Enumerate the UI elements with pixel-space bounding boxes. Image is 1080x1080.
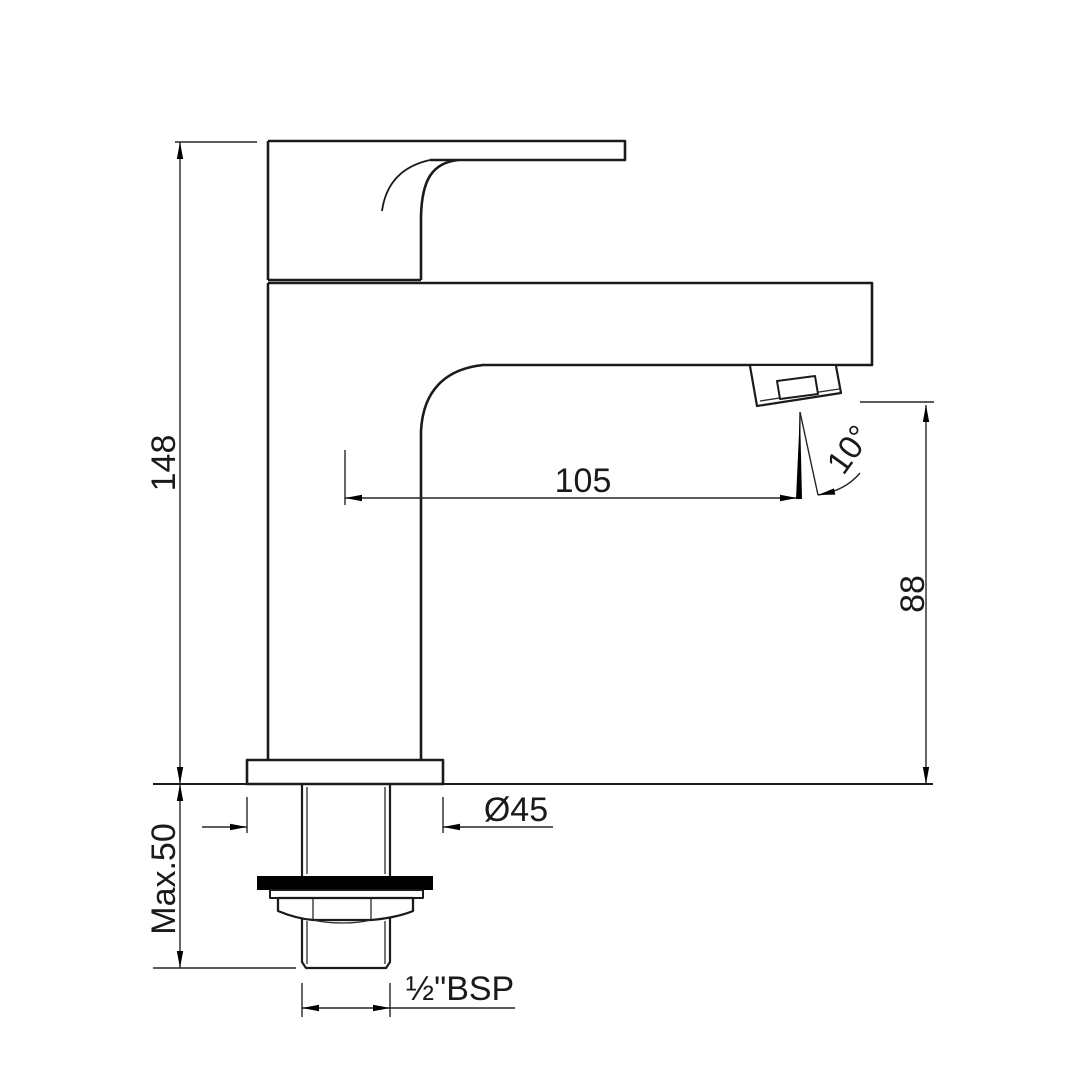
hex-nut-outline	[278, 898, 413, 920]
dim-max50-arrow-down	[177, 951, 183, 968]
dim-dia45: Ø45	[202, 791, 553, 833]
angle-wedge	[796, 412, 802, 499]
handle-lever	[268, 141, 625, 280]
dim-bsp-arrow-right	[373, 1005, 390, 1011]
dim-bsp: ½"BSP	[302, 970, 515, 1017]
dim-dia45-arrow-left	[230, 824, 247, 830]
dim-angle-label: 10°	[819, 418, 878, 480]
dim-max50-arrow-up	[177, 784, 183, 801]
dim-88: 88	[860, 402, 934, 784]
dim-148-arrow-up	[177, 142, 183, 159]
dim-max50-label: Max.50	[145, 823, 183, 935]
washer-plate	[270, 890, 423, 898]
spout-outline	[268, 283, 872, 760]
dim-88-arrow-up	[923, 405, 929, 422]
dim-angle-10: 10°	[796, 412, 878, 499]
dim-148: 148	[145, 142, 257, 784]
handle-inner-curve	[421, 160, 458, 280]
dim-88-label: 88	[894, 575, 932, 613]
dim-105-arrow-left	[345, 495, 362, 501]
rubber-washer	[257, 876, 433, 890]
handle-bar-outline	[268, 141, 625, 160]
faucet-dimension-drawing: 148 Max.50 105 10°	[0, 0, 1080, 1080]
base-flange	[247, 760, 443, 784]
dim-105-arrow-right	[780, 495, 797, 501]
dim-bsp-label: ½"BSP	[406, 970, 514, 1008]
dim-148-arrow-down	[177, 767, 183, 784]
dim-dia45-arrow-right	[443, 824, 460, 830]
dim-105: 105	[345, 450, 797, 505]
dim-88-arrow-down	[923, 767, 929, 784]
technical-drawing-canvas: 148 Max.50 105 10°	[0, 0, 1080, 1080]
dim-bsp-arrow-left	[302, 1005, 319, 1011]
angle-slant-line	[800, 412, 818, 495]
angle-arc-arrow	[817, 488, 835, 498]
aerator-face	[777, 376, 818, 399]
aerator	[750, 366, 841, 406]
angle-arc	[818, 473, 860, 495]
dim-105-label: 105	[555, 462, 612, 500]
body-spout	[268, 283, 872, 760]
hex-nut	[278, 898, 413, 923]
dim-148-label: 148	[145, 435, 183, 492]
faucet-outline	[153, 141, 933, 968]
dim-dia45-label: Ø45	[484, 791, 548, 829]
